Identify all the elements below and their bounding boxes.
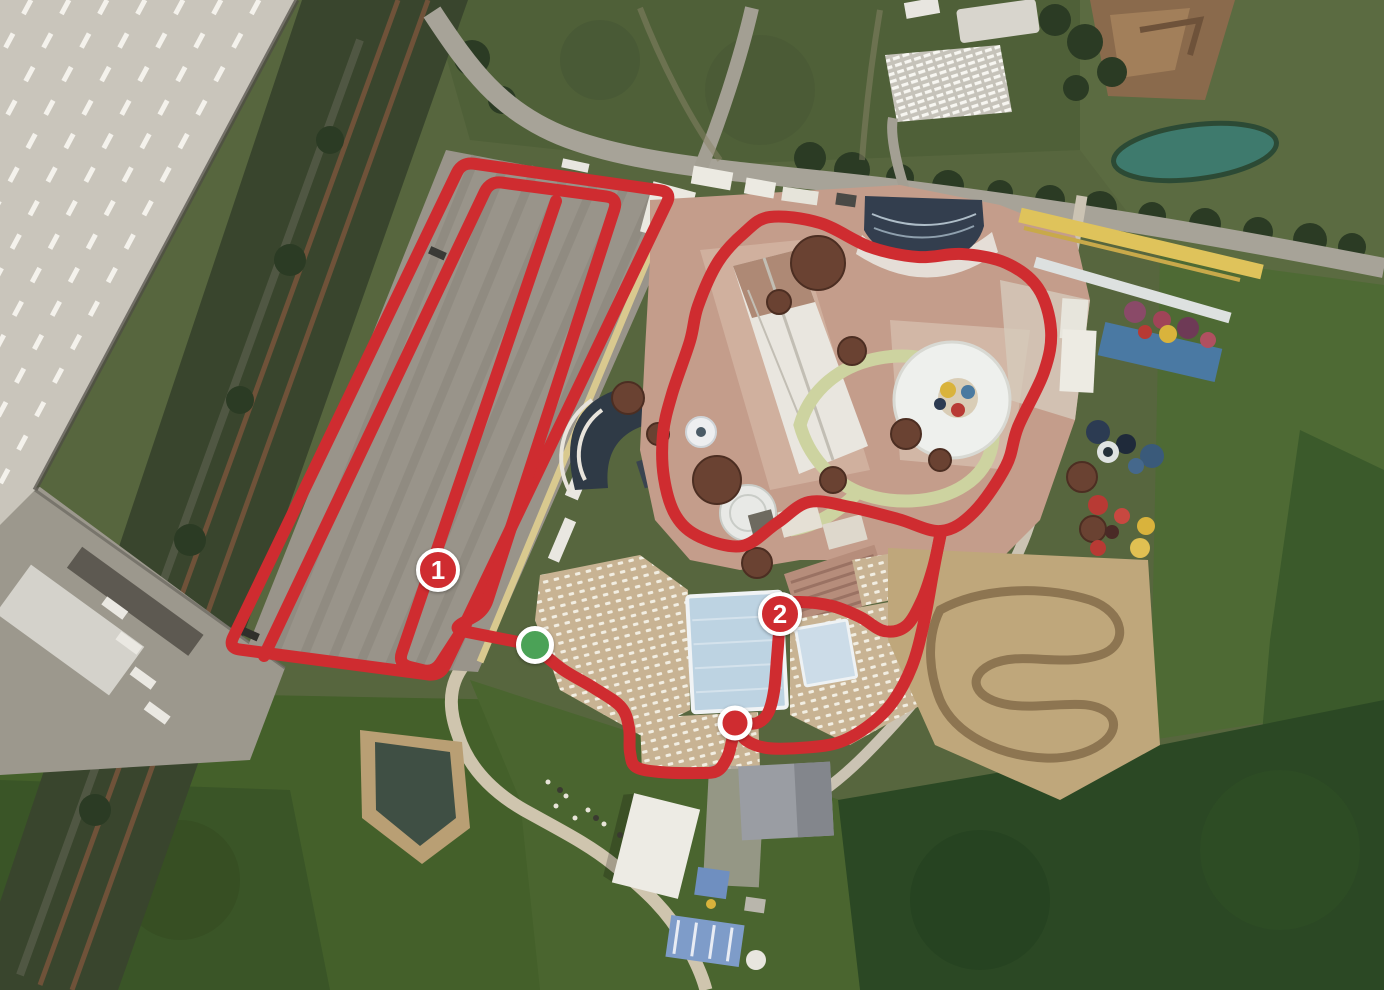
satellite-map[interactable]: 1 2	[0, 0, 1384, 990]
route-start-marker[interactable]	[516, 626, 554, 664]
route-finish-marker[interactable]	[718, 706, 753, 741]
route-path-waterpark-loop	[662, 216, 1051, 546]
route-waypoint-2-marker[interactable]: 2	[758, 592, 802, 636]
route-path-start-approach	[533, 645, 735, 773]
waypoint-1-label: 1	[431, 557, 445, 583]
route-overlay	[0, 0, 1384, 990]
route-waypoint-1-marker[interactable]: 1	[416, 548, 460, 592]
waypoint-2-label: 2	[773, 601, 787, 627]
